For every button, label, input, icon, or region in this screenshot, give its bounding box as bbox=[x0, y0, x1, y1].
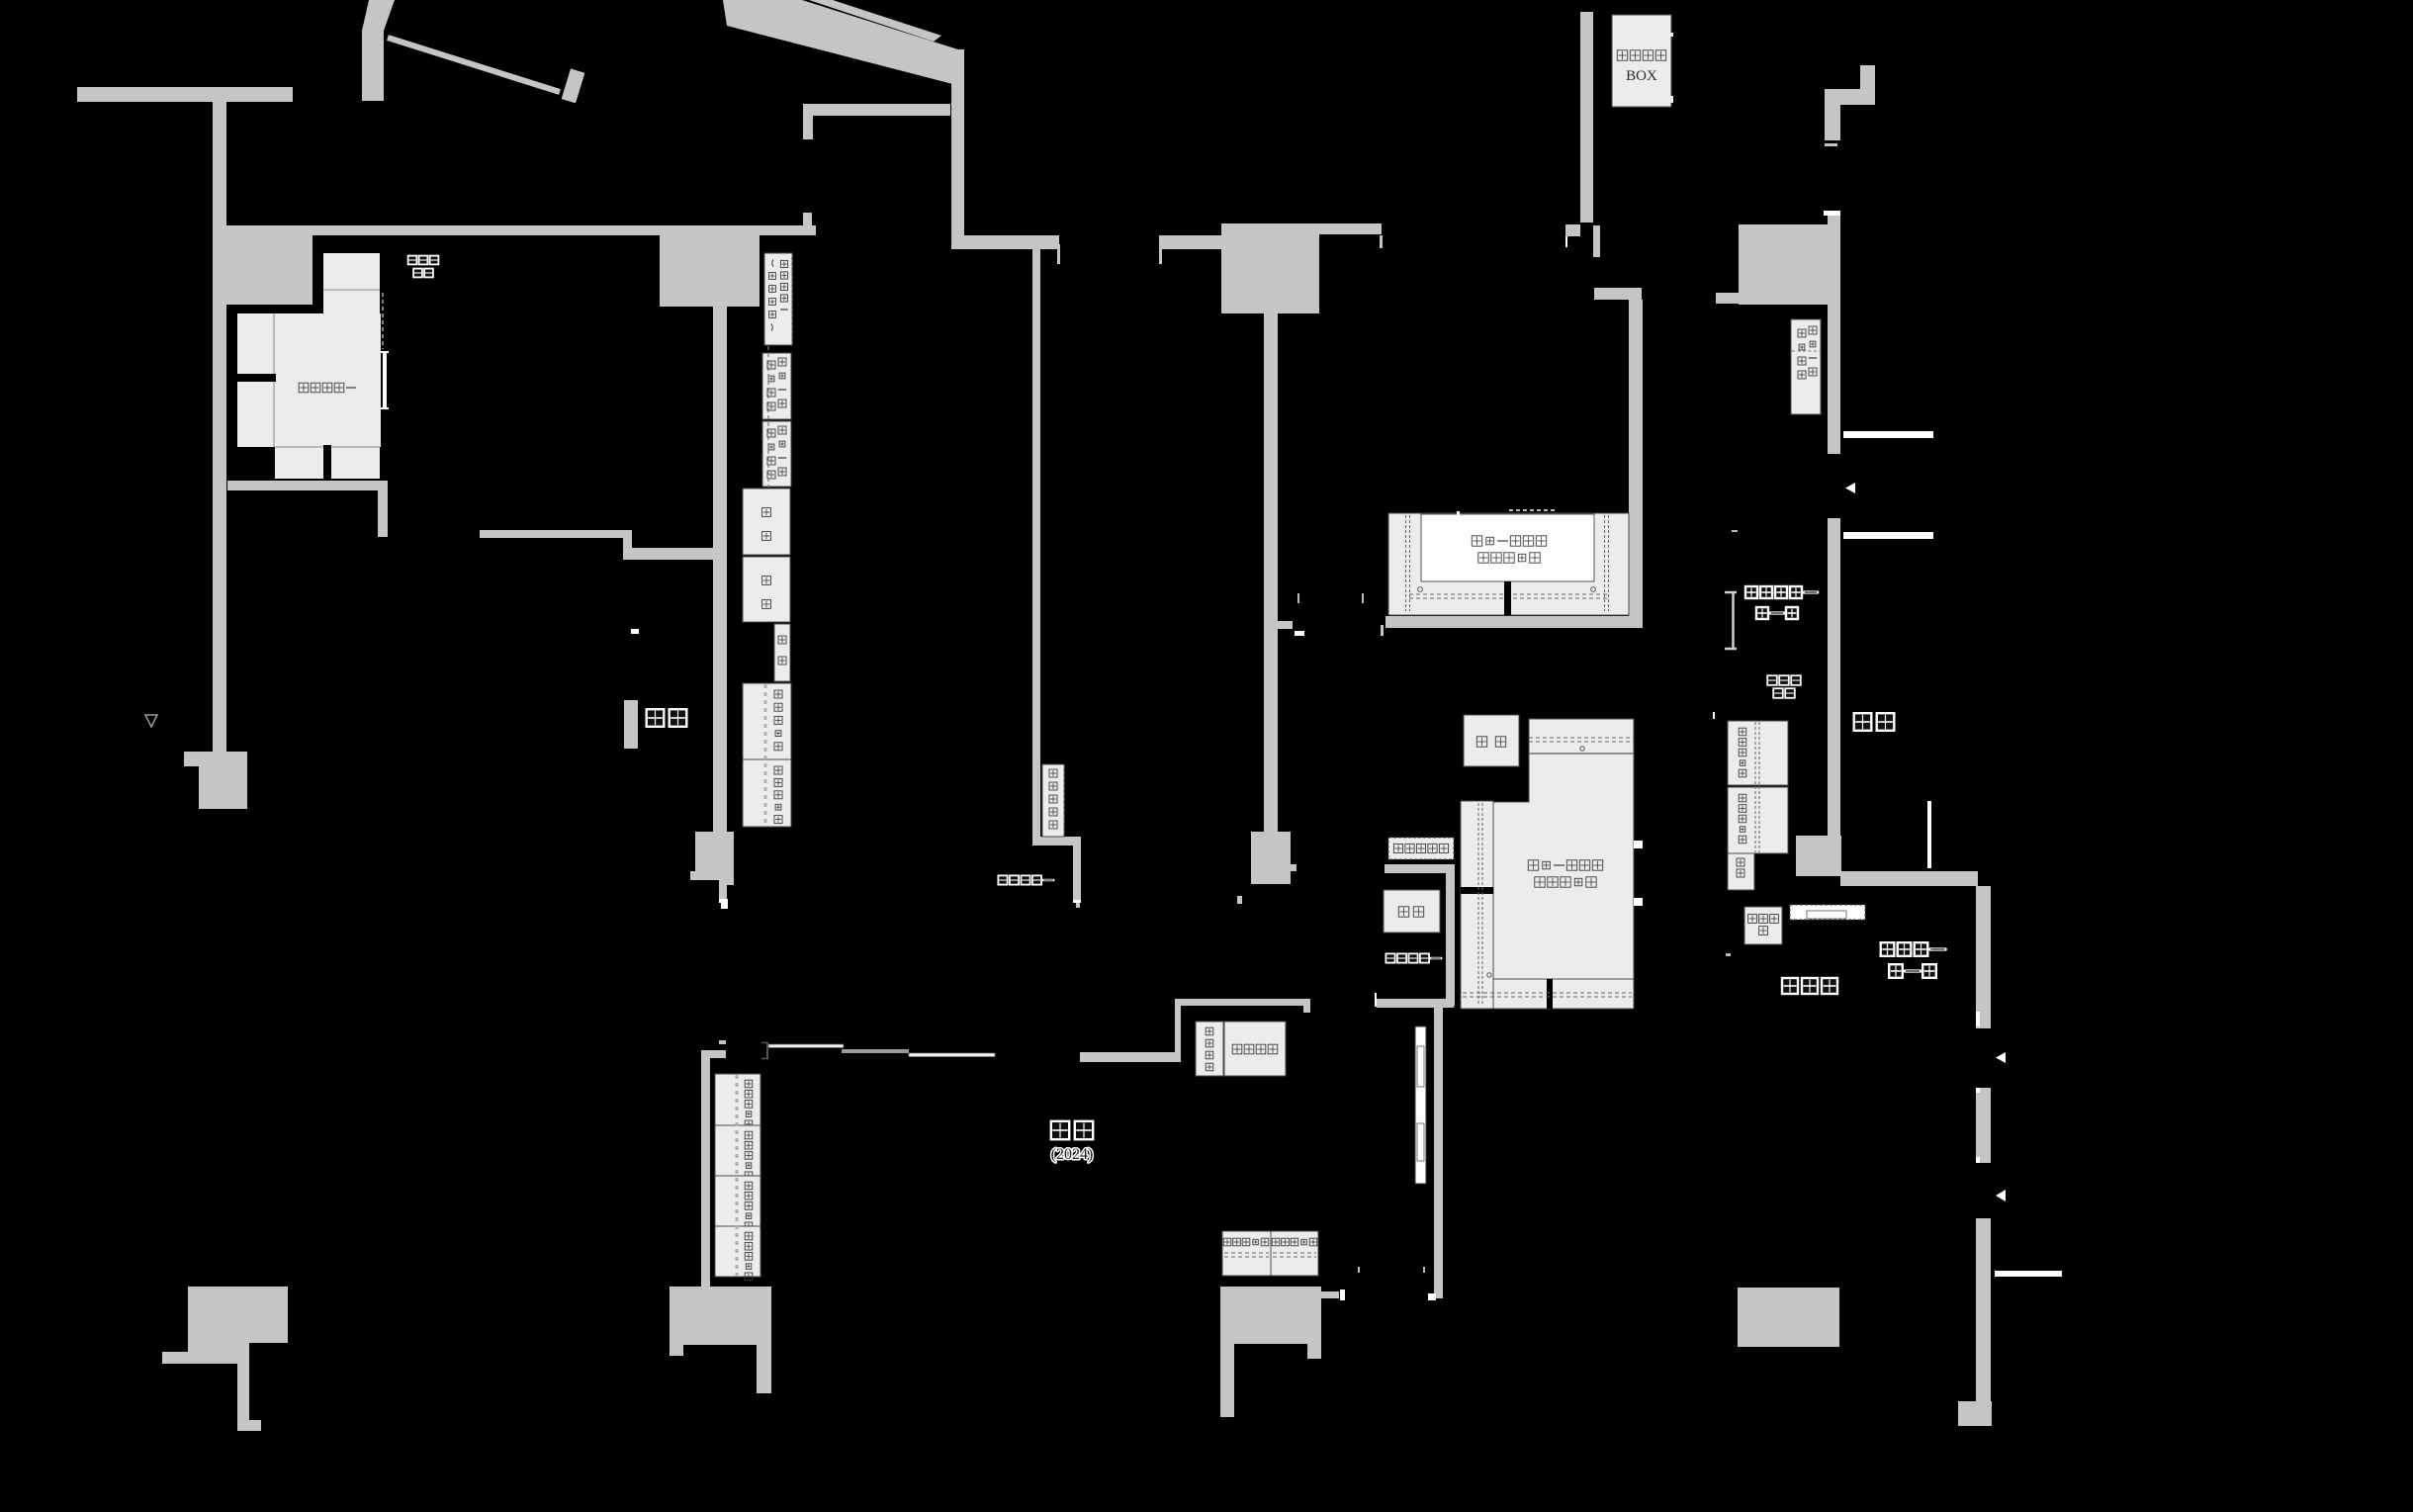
svg-text:(2024): (2024) bbox=[1051, 1146, 1094, 1163]
svg-text:BOX: BOX bbox=[1626, 68, 1657, 84]
